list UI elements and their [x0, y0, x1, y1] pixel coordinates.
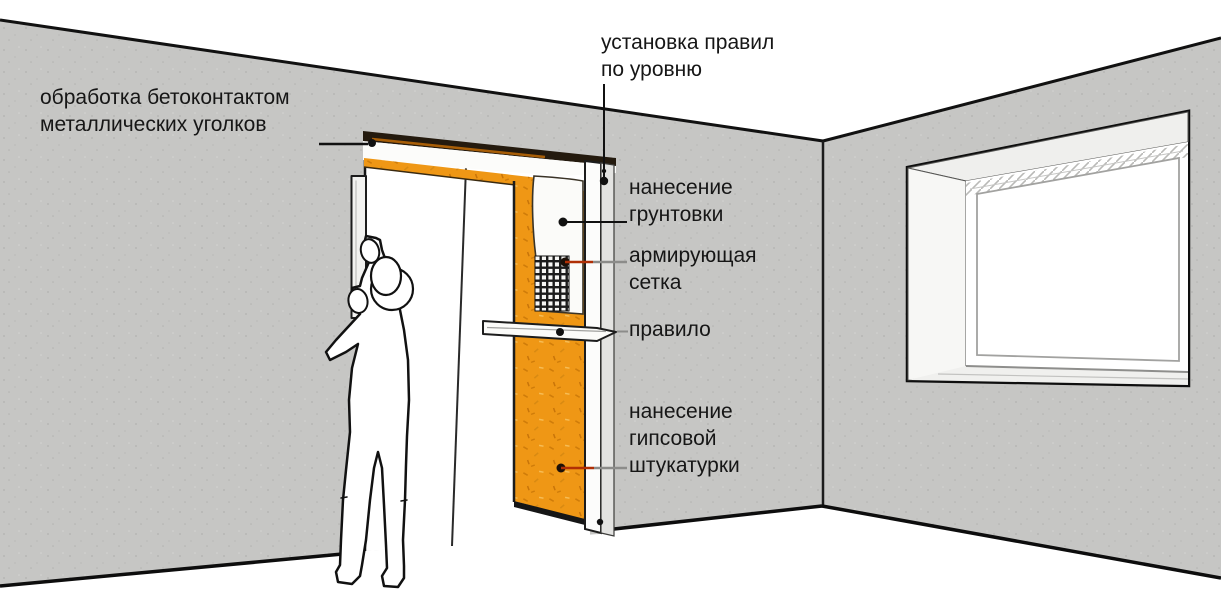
label-gypsum-plaster-line3: штукатурки [629, 452, 740, 479]
label-gypsum-plaster: нанесение гипсовой штукатурки [629, 398, 740, 479]
label-gypsum-plaster-line1: нанесение [629, 398, 740, 425]
illustration: обработка бетоконтактом металлических уг… [0, 0, 1221, 600]
label-rule-tool-line1: правило [629, 316, 711, 343]
label-mesh-line2: сетка [629, 269, 757, 296]
label-corner-treatment-line2: металлических уголков [40, 111, 290, 138]
label-primer-line2: грунтовки [629, 201, 733, 228]
worker-head [371, 257, 401, 295]
rail-top-dot [600, 177, 608, 185]
window-left-reveal [908, 168, 966, 380]
label-mesh: армирующая сетка [629, 242, 757, 296]
worker-knee-mark-right [401, 500, 407, 501]
label-rules-by-level-line1: установка правил [601, 29, 774, 56]
vertical-rail-front [585, 161, 601, 533]
label-rules-by-level: установка правил по уровню [601, 29, 774, 83]
rail-bottom-dot [597, 519, 603, 525]
label-primer-line1: нанесение [629, 174, 733, 201]
label-corner-treatment-line1: обработка бетоконтактом [40, 84, 290, 111]
leader-corner-treatment-dot [368, 139, 376, 147]
leader-rule-dot [556, 328, 564, 336]
label-gypsum-plaster-line2: гипсовой [629, 425, 740, 452]
label-primer: нанесение грунтовки [629, 174, 733, 228]
worker-knee-mark-left [341, 497, 347, 498]
label-rules-by-level-line2: по уровню [601, 56, 774, 83]
label-rule-tool: правило [629, 316, 711, 343]
label-corner-treatment: обработка бетоконтактом металлических уг… [40, 84, 290, 138]
vertical-rail-side [601, 163, 614, 536]
label-mesh-line1: армирующая [629, 242, 757, 269]
